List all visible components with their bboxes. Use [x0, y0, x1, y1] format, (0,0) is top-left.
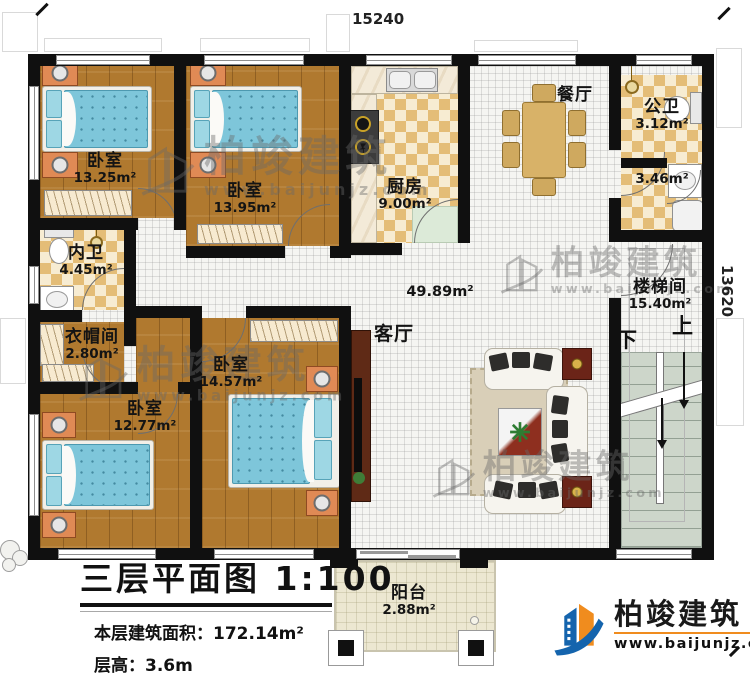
balcony-pillar-core: [338, 640, 354, 656]
floor-height-value: 3.6m: [145, 656, 193, 676]
wall-interior: [458, 54, 470, 243]
room-name: 公卫: [626, 98, 698, 117]
room-area: 14.57m²: [172, 375, 290, 390]
stair-up-label: 上: [672, 310, 693, 340]
corner-tick-mark: [35, 3, 48, 16]
sofa-cushion: [551, 395, 569, 415]
room-name: 卧室: [86, 400, 204, 419]
stove-burner: [355, 116, 371, 132]
kitchen-sink-basin: [389, 71, 411, 89]
corner-tick-mark: [717, 7, 730, 20]
title-block: 三层平面图 1:100 本层建筑面积：172.14m² 层高：3.6m: [80, 552, 340, 676]
brand-site: www.baijunjz.com: [614, 636, 750, 652]
plan-title-text: 三层平面图: [80, 559, 260, 598]
sliding-door-leaf: [408, 555, 456, 558]
floor-area-line: 本层建筑面积：172.14m²: [94, 619, 340, 644]
bathtub: [672, 200, 704, 232]
plant-icon: [509, 421, 531, 443]
dimension-extension-line: [326, 14, 350, 52]
wall-interior: [186, 246, 285, 258]
room-area: 2.80m²: [40, 347, 144, 362]
brand-logo: 柏竣建筑 www.baijunjz.com: [552, 596, 750, 656]
dimension-extension-line: [2, 12, 38, 52]
wall-interior: [28, 218, 138, 230]
floor-height-line: 层高：3.6m: [94, 651, 340, 676]
stair-direction-arrow-head: [679, 400, 689, 409]
wall-interior: [246, 306, 351, 318]
brand-divider: [614, 632, 750, 634]
bed-pillow: [314, 440, 332, 480]
nightstand: [42, 412, 76, 438]
balcony-pillar-core: [468, 640, 484, 656]
bed-pillow: [194, 90, 210, 118]
dimension-extension-line: [0, 318, 26, 384]
stair-direction-arrow-head: [657, 440, 667, 449]
wall-balcony-stub: [460, 548, 488, 568]
side-table: [562, 476, 592, 508]
room-name: 卧室: [45, 152, 165, 171]
cabinet-plant: [353, 472, 365, 484]
room-label-bath-lower: 3.46m²: [626, 172, 698, 187]
wall-interior: [339, 54, 351, 258]
bed-sheet-fold: [302, 400, 314, 482]
floor-plan-canvas: 柏竣建筑www.baijunjz.com 柏竣建筑www.baijunjz.co…: [0, 0, 750, 676]
floor-height-label: 层高：: [94, 656, 145, 676]
room-name: 衣帽间: [40, 328, 144, 347]
bed-pillow: [194, 120, 210, 148]
sofa-cushion: [518, 482, 536, 498]
room-label-bedroom-bottom-mid: 卧室 14.57m²: [172, 356, 290, 390]
stair-direction-arrow-line: [683, 352, 685, 402]
nightstand: [306, 490, 338, 516]
room-label-stairwell: 楼梯间 15.40m²: [604, 278, 716, 312]
side-table: [562, 348, 592, 380]
nightstand: [190, 152, 226, 178]
bed-pillow: [46, 120, 62, 148]
floor-area-value: 172.14m²: [213, 624, 304, 644]
wall-interior: [621, 158, 667, 168]
plan-scale: 1:100: [275, 559, 395, 598]
sofa-cushion: [552, 420, 568, 438]
room-area: 3.12m²: [626, 117, 698, 132]
tv: [354, 378, 362, 472]
dining-chair: [568, 142, 586, 168]
bed-pillow: [46, 90, 62, 118]
window: [29, 86, 39, 180]
wardrobe: [44, 190, 132, 216]
window: [29, 266, 39, 304]
window: [204, 55, 304, 65]
bathroom-sink-basin: [46, 291, 68, 308]
wall-interior: [339, 306, 351, 548]
room-area: 15.40m²: [604, 297, 716, 312]
balcony-drain: [470, 616, 479, 625]
stove-burner: [355, 139, 371, 155]
wardrobe: [250, 320, 338, 342]
room-label-living-name: 客厅: [352, 324, 436, 345]
room-area: 2.88m²: [354, 603, 464, 618]
room-name: 卧室: [172, 356, 290, 375]
dimension-extension-line: [44, 38, 162, 52]
window: [366, 55, 452, 65]
nightstand: [306, 366, 338, 392]
window: [56, 55, 150, 65]
window: [616, 549, 692, 559]
room-label-living-area: 49.89m²: [386, 284, 494, 300]
bed-mattress: [64, 444, 150, 506]
bed-pillow: [46, 476, 62, 506]
room-area: 4.45m²: [42, 263, 130, 278]
bed-mattress: [212, 90, 298, 148]
title-underline: [80, 603, 332, 607]
dimension-extension-line: [716, 48, 742, 128]
window: [636, 55, 692, 65]
room-name: 卧室: [183, 182, 307, 201]
room-area: 3.46m²: [626, 172, 698, 187]
room-area: 49.89m²: [386, 284, 494, 300]
brand-logo-text: 柏竣建筑 www.baijunjz.com: [614, 600, 750, 652]
dining-chair: [502, 142, 520, 168]
room-area: 13.25m²: [45, 171, 165, 186]
room-name: 客厅: [352, 324, 436, 345]
floor-area-label: 本层建筑面积：: [94, 624, 213, 644]
room-name: 内卫: [42, 244, 130, 263]
stair-down-label: 下: [616, 324, 637, 354]
window: [478, 55, 576, 65]
room-name: 楼梯间: [604, 278, 716, 297]
room-label-kitchen: 厨房 9.00m²: [355, 178, 455, 212]
window: [29, 414, 39, 516]
brand-logo-icon: [552, 596, 606, 656]
room-area: 9.00m²: [355, 197, 455, 212]
room-area: 13.95m²: [183, 201, 307, 216]
sofa-cushion: [533, 353, 554, 372]
room-area: 12.77m²: [86, 419, 204, 434]
brand-name: 柏竣建筑: [614, 600, 750, 629]
kitchen-sink-basin: [414, 71, 436, 89]
sofa-cushion: [512, 352, 530, 368]
room-label-bedroom-top-left: 卧室 13.25m²: [45, 152, 165, 186]
room-label-inner-bath: 内卫 4.45m²: [42, 244, 130, 278]
wall-interior: [28, 310, 82, 322]
bed-mattress: [232, 398, 310, 484]
wall-interior: [609, 230, 714, 242]
dimension-extension-line: [474, 40, 578, 52]
sofa-cushion: [551, 443, 570, 463]
plan-title: 三层平面图 1:100: [80, 552, 340, 600]
bed-pillow: [314, 398, 332, 438]
sofa-cushion: [539, 481, 560, 500]
wall-interior: [178, 218, 186, 230]
dimension-extension-line: [716, 318, 744, 426]
dining-chair: [568, 110, 586, 136]
pendant-lamp-icon: [625, 80, 639, 94]
room-name: 厨房: [355, 178, 455, 197]
room-label-cloakroom: 衣帽间 2.80m²: [40, 328, 144, 362]
dining-table: [522, 102, 566, 178]
dining-chair: [502, 110, 520, 136]
stair-direction-arrow-line: [661, 398, 663, 442]
wall-interior: [28, 382, 138, 394]
sliding-door-leaf: [360, 551, 408, 554]
room-label-bedroom-top-mid: 卧室 13.95m²: [183, 182, 307, 216]
sofa-cushion: [493, 480, 514, 499]
title-underline-thin: [80, 611, 332, 612]
bed-mattress: [64, 90, 148, 148]
dimension-top: 15240: [352, 10, 404, 28]
wardrobe: [197, 224, 283, 244]
dimension-right: 13620: [718, 258, 736, 324]
room-label-bedroom-bottom-left: 卧室 12.77m²: [86, 400, 204, 434]
wall-interior: [339, 243, 402, 255]
room-label-dining: 餐厅: [536, 86, 614, 105]
room-label-public-bath: 公卫 3.12m²: [626, 98, 698, 132]
dimension-extension-line: [200, 38, 310, 52]
shrub-icon: [2, 558, 16, 572]
dining-chair: [532, 178, 556, 196]
room-name: 餐厅: [536, 86, 614, 105]
nightstand: [42, 512, 76, 538]
bed-pillow: [46, 444, 62, 474]
